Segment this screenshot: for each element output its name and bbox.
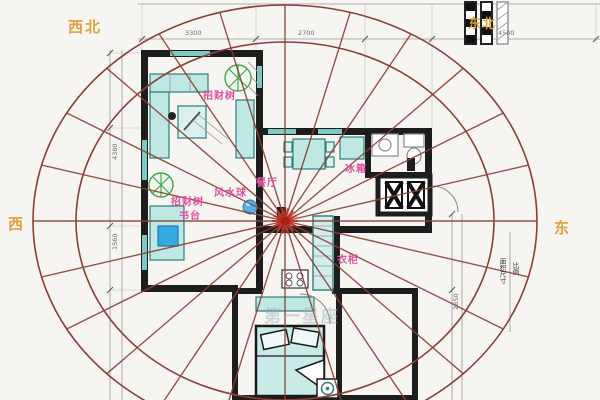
feng-shui-floorplan: 西北 东北 西 东 招财树 招财树 书台 风水球 餐厅 冰箱 衣柜 第一星座 3… [0, 0, 600, 400]
entry-door-arc [432, 186, 458, 212]
kitchen-sink [372, 134, 398, 156]
compass-radiating-lines [33, 5, 537, 400]
label-wardrobe: 衣柜 [337, 253, 359, 266]
label-dining-room: 餐厅 [255, 176, 278, 189]
dim-top-1: 3300 [185, 29, 202, 37]
label-money-tree-top: 招财树 [203, 89, 236, 102]
plant-left-icon [149, 173, 173, 197]
dim-top-3: 4500 [498, 29, 515, 37]
watermark: 第一星座 [264, 306, 340, 327]
label-west: 西 [8, 215, 25, 233]
elevator-shaft [378, 176, 430, 214]
plan-canvas: 西北 东北 西 东 招财树 招财树 书台 风水球 餐厅 冰箱 衣柜 第一星座 3… [0, 0, 600, 400]
stove [282, 270, 308, 288]
dim-right-1: 2850 [452, 293, 460, 310]
sofa-item [168, 112, 176, 120]
label-northwest: 西北 [68, 18, 102, 36]
label-desk: 书台 [179, 209, 201, 222]
label-east: 东 [554, 219, 571, 237]
dim-top-2: 2700 [298, 29, 315, 37]
label-money-tree-left: 招财树 [171, 195, 204, 208]
note-scale: 比例 [511, 261, 519, 277]
label-northeast: 东北 [468, 16, 496, 32]
bed [256, 326, 324, 396]
dim-left-2: 1560 [111, 233, 119, 250]
tv-cabinet [236, 100, 254, 158]
note-area: 面积尺寸 [498, 258, 506, 285]
label-fridge: 冰箱 [345, 162, 367, 175]
desk-chair [158, 226, 178, 246]
dim-left-1: 4380 [111, 143, 119, 160]
label-feng-shui-ball: 风水球 [214, 186, 247, 199]
